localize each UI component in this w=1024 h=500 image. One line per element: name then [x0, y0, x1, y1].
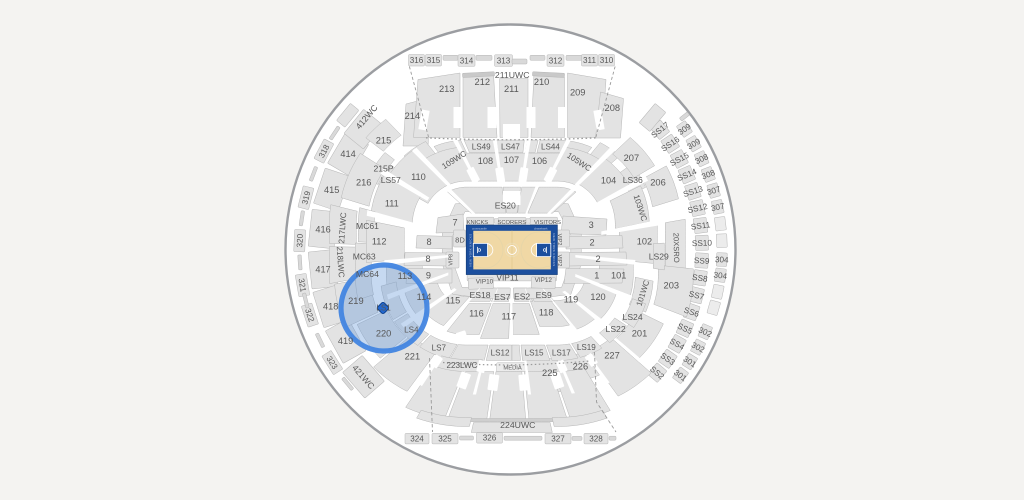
svg-text:114: 114 [417, 292, 432, 302]
svg-text:ES2: ES2 [514, 291, 530, 301]
svg-text:418: 418 [323, 302, 338, 312]
svg-text:MC63: MC63 [353, 251, 376, 261]
svg-text:207: 207 [624, 153, 640, 163]
svg-text:VIP11: VIP11 [496, 272, 519, 282]
svg-text:LS57: LS57 [381, 175, 401, 185]
svg-text:320: 320 [295, 233, 305, 247]
svg-text:328: 328 [589, 435, 603, 444]
svg-text:104: 104 [601, 176, 616, 186]
svg-text:MEDIA: MEDIA [503, 366, 521, 372]
svg-text:113: 113 [398, 271, 413, 281]
svg-text:2: 2 [595, 254, 600, 264]
svg-text:crowncastle: crowncastle [472, 227, 487, 231]
svg-text:227: 227 [604, 350, 620, 360]
svg-text:116: 116 [469, 308, 484, 318]
svg-text:LS15: LS15 [525, 348, 544, 357]
svg-text:ES7: ES7 [494, 292, 510, 302]
svg-text:7: 7 [452, 217, 457, 227]
svg-text:416: 416 [315, 225, 330, 235]
svg-text:220: 220 [376, 329, 392, 339]
svg-text:VIP10: VIP10 [476, 279, 494, 286]
svg-text:ES20: ES20 [495, 200, 516, 210]
svg-text:VISITORS: VISITORS [534, 220, 561, 226]
svg-text:326: 326 [483, 434, 497, 443]
svg-text:ES9: ES9 [536, 290, 552, 300]
svg-text:221: 221 [405, 351, 421, 361]
svg-text:VIP8: VIP8 [449, 254, 455, 266]
svg-text:209: 209 [570, 87, 586, 97]
svg-text:310: 310 [600, 56, 614, 65]
svg-text:212: 212 [475, 77, 491, 87]
svg-text:325: 325 [438, 435, 452, 444]
svg-text:SS10: SS10 [692, 238, 713, 248]
svg-text:9: 9 [426, 270, 431, 280]
svg-text:311: 311 [583, 56, 596, 65]
svg-text:224UWC: 224UWC [500, 420, 535, 430]
svg-text:107: 107 [504, 155, 519, 165]
svg-text:206: 206 [650, 178, 666, 188]
svg-text:102: 102 [637, 237, 652, 247]
svg-text:LS44: LS44 [541, 143, 560, 152]
svg-text:LS47: LS47 [501, 143, 520, 152]
svg-text:SCORERS: SCORERS [497, 220, 526, 226]
svg-text:201: 201 [632, 329, 648, 339]
svg-text:111: 111 [385, 199, 399, 209]
svg-text:101: 101 [611, 270, 626, 280]
svg-text:3: 3 [589, 220, 594, 230]
svg-text:327: 327 [551, 435, 565, 444]
svg-text:213: 213 [439, 84, 455, 94]
svg-text:VIP12: VIP12 [535, 277, 553, 284]
svg-text:LS4: LS4 [404, 326, 419, 335]
svg-text:LS29: LS29 [649, 251, 669, 261]
svg-text:VIP2: VIP2 [556, 255, 562, 267]
svg-text:2: 2 [589, 237, 594, 247]
svg-text:108: 108 [478, 156, 493, 166]
svg-text:118: 118 [539, 308, 554, 318]
svg-text:8: 8 [425, 254, 430, 264]
svg-text:203: 203 [664, 280, 680, 290]
svg-text:225: 225 [542, 368, 558, 378]
svg-text:216: 216 [356, 178, 372, 188]
svg-text:211: 211 [504, 84, 519, 94]
svg-text:115: 115 [446, 296, 461, 306]
svg-text:LS19: LS19 [577, 343, 596, 352]
svg-text:208: 208 [605, 103, 621, 113]
svg-text:KNICKS: KNICKS [467, 220, 489, 226]
svg-text:8: 8 [426, 237, 431, 247]
svg-text:223LWC: 223LWC [447, 361, 478, 370]
svg-text:120: 120 [590, 292, 605, 302]
svg-text:LS1: LS1 [376, 304, 391, 313]
svg-text:215P: 215P [373, 163, 393, 173]
svg-text:304: 304 [713, 270, 728, 281]
svg-text:117: 117 [501, 311, 516, 321]
svg-text:MC64: MC64 [356, 269, 379, 279]
svg-text:304: 304 [715, 255, 730, 265]
svg-text:414: 414 [340, 149, 355, 159]
svg-text:315: 315 [427, 56, 441, 65]
svg-text:314: 314 [460, 56, 474, 65]
svg-text:415: 415 [324, 185, 339, 195]
svg-text:324: 324 [410, 435, 424, 444]
svg-text:1: 1 [594, 271, 599, 281]
svg-text:219: 219 [348, 296, 364, 306]
svg-text:LS7: LS7 [432, 343, 447, 352]
svg-text:ES18: ES18 [469, 290, 490, 300]
svg-text:417: 417 [315, 265, 330, 275]
svg-text:226: 226 [573, 361, 589, 371]
svg-text:LS49: LS49 [472, 143, 491, 152]
svg-text:312: 312 [549, 56, 563, 65]
svg-text:NEW YORK KNICKS: NEW YORK KNICKS [552, 233, 556, 266]
svg-text:419: 419 [338, 336, 353, 346]
svg-text:211UWC: 211UWC [495, 70, 530, 80]
svg-text:214: 214 [405, 111, 421, 121]
svg-text:215: 215 [376, 136, 392, 146]
svg-text:112: 112 [372, 237, 387, 247]
svg-text:SS9: SS9 [694, 256, 710, 266]
svg-text:316: 316 [410, 56, 424, 65]
svg-text:313: 313 [497, 56, 511, 65]
svg-text:210: 210 [534, 77, 550, 87]
svg-text:VIP2: VIP2 [556, 234, 562, 246]
svg-text:LS36: LS36 [623, 175, 643, 185]
svg-text:chasebank: chasebank [534, 227, 548, 231]
svg-text:NEW YORK KNICKS: NEW YORK KNICKS [469, 233, 473, 266]
svg-text:LS22: LS22 [606, 324, 626, 334]
svg-text:106: 106 [532, 156, 547, 166]
svg-text:LS17: LS17 [552, 348, 571, 357]
svg-text:20XSRO: 20XSRO [672, 233, 682, 263]
svg-text:110: 110 [411, 172, 426, 182]
svg-text:119: 119 [564, 295, 579, 305]
svg-text:8D: 8D [455, 235, 465, 244]
svg-text:LS12: LS12 [491, 348, 510, 357]
svg-text:MC61: MC61 [356, 221, 379, 231]
svg-text:LS24: LS24 [623, 312, 643, 322]
